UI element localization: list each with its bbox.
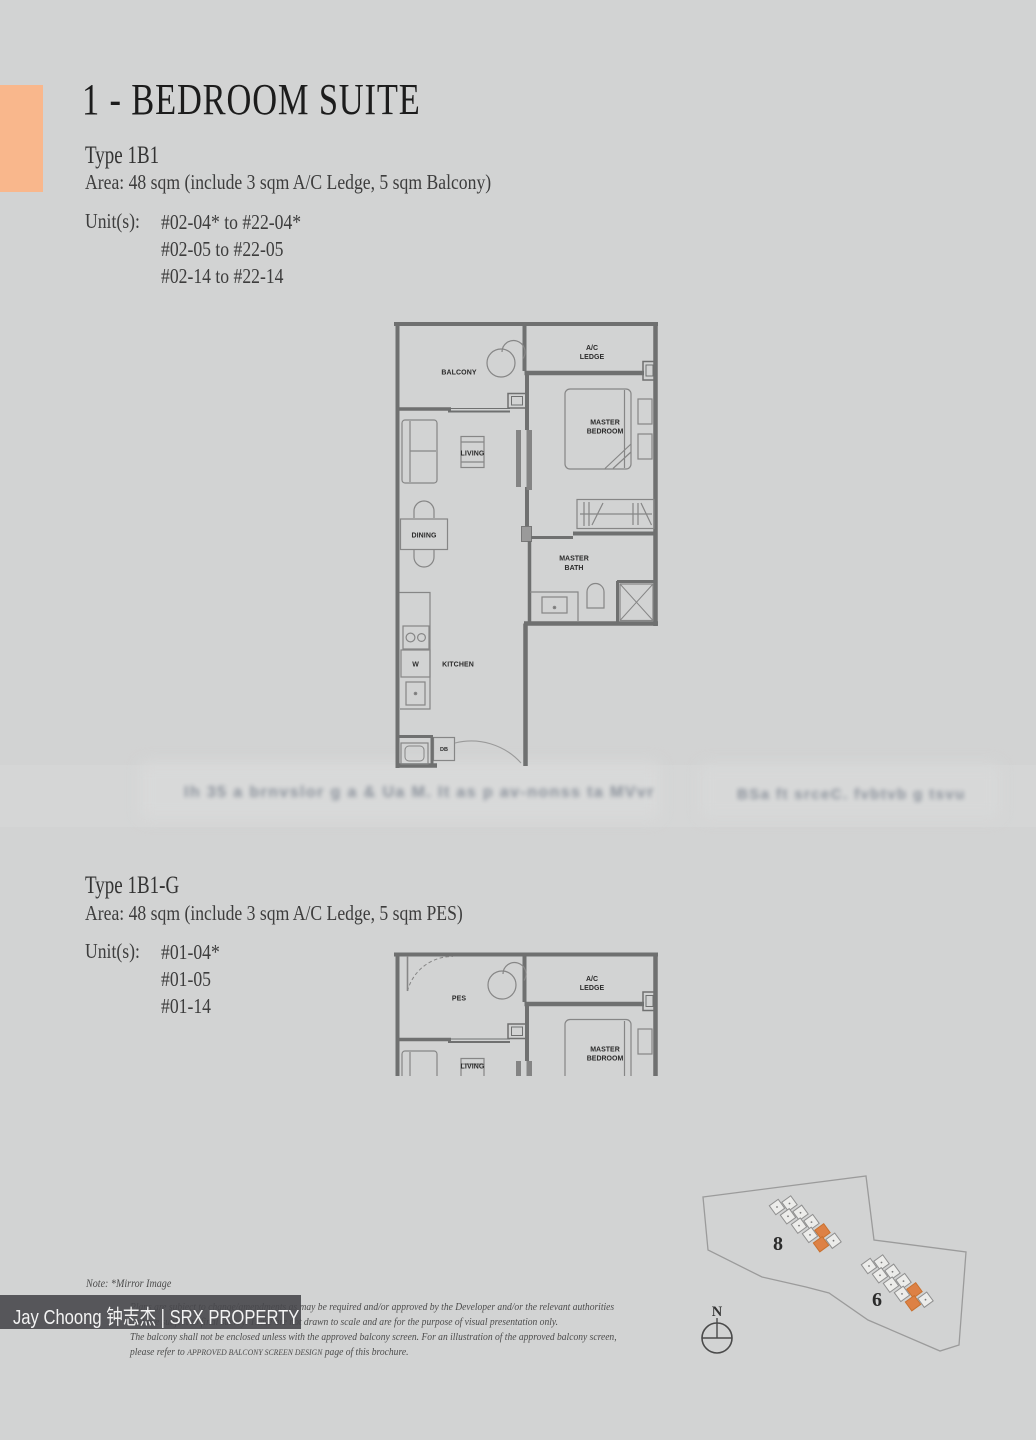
svg-text:BATH: BATH (565, 565, 584, 572)
svg-text:LIVING: LIVING (461, 451, 485, 458)
svg-text:MASTER: MASTER (590, 420, 620, 427)
svg-text:PES: PES (452, 996, 467, 1003)
svg-text:MASTER: MASTER (590, 1047, 620, 1054)
svg-text:DINING: DINING (411, 533, 437, 540)
svg-text:KITCHEN: KITCHEN (442, 662, 474, 669)
svg-text:BALCONY: BALCONY (441, 370, 477, 377)
svg-text:BEDROOM: BEDROOM (587, 429, 624, 436)
svg-text:A/C: A/C (586, 976, 598, 983)
svg-text:6: 6 (872, 1289, 882, 1311)
svg-text:LEDGE: LEDGE (580, 354, 605, 361)
svg-text:N: N (712, 1304, 723, 1320)
svg-text:A/C: A/C (586, 345, 598, 352)
svg-text:MASTER: MASTER (559, 556, 589, 563)
svg-text:8: 8 (773, 1233, 783, 1255)
svg-text:LIVING: LIVING (461, 1064, 485, 1071)
svg-text:W: W (412, 662, 419, 669)
svg-text:LEDGE: LEDGE (580, 985, 605, 992)
svg-text:BEDROOM: BEDROOM (587, 1056, 624, 1063)
svg-text:DB: DB (440, 747, 448, 753)
